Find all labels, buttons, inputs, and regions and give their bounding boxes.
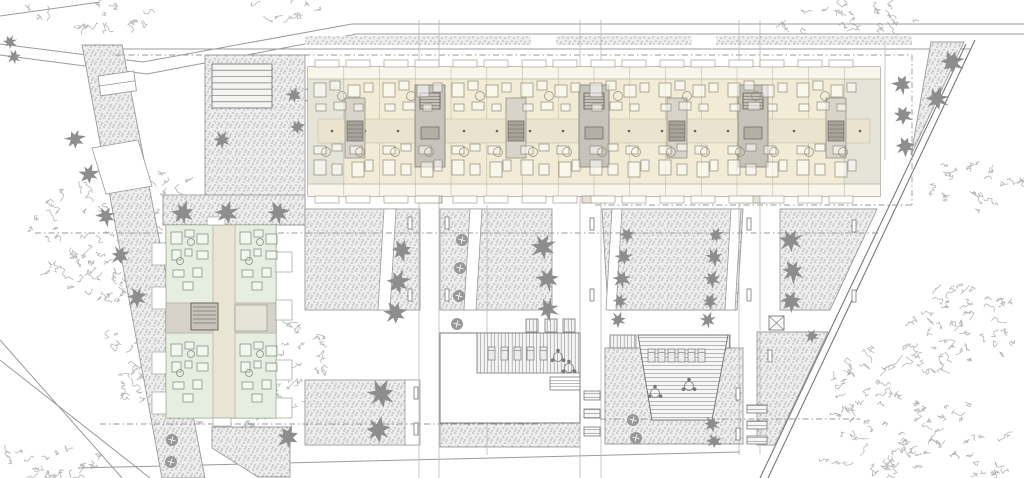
furniture xyxy=(185,249,192,256)
balcony-stub xyxy=(484,60,508,67)
balcony-stub xyxy=(591,60,615,67)
pool-terrace-west xyxy=(440,333,580,423)
balcony-stub xyxy=(829,60,853,67)
furniture xyxy=(728,146,740,154)
balcony-stub xyxy=(798,60,822,67)
balcony-stub xyxy=(760,196,784,203)
furniture xyxy=(314,83,326,97)
balcony-stub xyxy=(453,60,477,67)
balcony-stub xyxy=(829,196,853,203)
furniture xyxy=(383,146,395,154)
sun-lounger xyxy=(668,349,675,362)
outdoor-steps xyxy=(584,391,600,400)
furniture xyxy=(354,104,363,111)
balcony-stub xyxy=(553,60,577,67)
column-dot xyxy=(727,130,730,133)
furniture xyxy=(779,160,787,171)
column-dot xyxy=(859,130,862,133)
furniture xyxy=(242,270,253,277)
furniture xyxy=(590,146,602,154)
bench-marker xyxy=(736,428,740,440)
bench-marker xyxy=(747,218,751,230)
balcony-stub xyxy=(453,196,477,203)
furniture xyxy=(254,249,261,256)
sun-lounger xyxy=(501,347,508,360)
furniture xyxy=(197,234,208,244)
sun-lounger xyxy=(678,349,685,362)
furniture xyxy=(697,162,709,177)
furniture xyxy=(241,250,250,260)
furniture xyxy=(434,160,442,171)
balcony-stub xyxy=(622,60,646,67)
balcony-stub xyxy=(622,196,646,203)
furniture xyxy=(699,104,708,111)
furniture xyxy=(401,144,411,151)
furniture xyxy=(452,83,464,97)
furniture xyxy=(470,164,480,175)
furniture xyxy=(314,160,326,175)
furniture xyxy=(815,164,825,175)
furniture xyxy=(314,146,326,154)
furniture xyxy=(559,162,571,177)
furniture xyxy=(185,361,192,368)
pergola xyxy=(610,335,636,348)
north-apartment-building xyxy=(308,60,880,203)
furniture xyxy=(608,164,618,175)
furniture xyxy=(815,144,825,151)
furniture xyxy=(521,146,533,154)
furniture xyxy=(677,164,687,175)
furniture xyxy=(262,380,271,389)
furniture xyxy=(486,85,498,97)
furniture xyxy=(470,144,480,151)
column-dot xyxy=(793,130,796,133)
furniture xyxy=(539,164,549,175)
furniture xyxy=(383,160,395,175)
balcony-stub xyxy=(384,60,408,67)
bench-marker xyxy=(768,350,772,362)
core-wing xyxy=(235,305,267,331)
outdoor-steps xyxy=(747,405,767,413)
furniture xyxy=(364,83,373,92)
furniture xyxy=(746,164,756,175)
furniture xyxy=(606,81,616,90)
furniture xyxy=(561,104,570,111)
outdoor-steps xyxy=(584,427,600,436)
furniture xyxy=(334,102,346,110)
furniture xyxy=(241,362,250,372)
balcony-stub xyxy=(415,196,439,203)
entry-stub xyxy=(213,418,231,426)
bench-marker xyxy=(736,388,740,400)
balcony-stub xyxy=(152,287,166,309)
furniture xyxy=(197,346,208,356)
furniture xyxy=(837,104,846,111)
pool-south-strip xyxy=(440,423,580,447)
furniture xyxy=(240,344,251,356)
balcony-stub xyxy=(729,60,753,67)
furniture xyxy=(254,342,263,349)
furniture xyxy=(728,83,740,97)
bench-marker xyxy=(747,289,751,301)
furniture xyxy=(452,146,464,154)
furniture xyxy=(254,361,261,368)
balcony-stub xyxy=(415,60,439,67)
furniture xyxy=(503,160,511,171)
balcony-stub xyxy=(315,196,339,203)
furniture xyxy=(797,160,809,175)
bench-marker xyxy=(852,290,856,302)
balcony-stub xyxy=(384,196,408,203)
bench-marker xyxy=(408,217,412,229)
furniture xyxy=(659,83,671,97)
furniture xyxy=(608,144,618,151)
bench-marker xyxy=(445,289,449,301)
balcony-stub xyxy=(660,60,684,67)
furniture xyxy=(242,382,253,389)
furniture xyxy=(744,81,754,90)
balcony-stub xyxy=(152,352,166,374)
furniture xyxy=(433,83,442,92)
furniture xyxy=(183,394,193,402)
sun-lounger xyxy=(658,349,665,362)
furniture xyxy=(266,234,277,244)
furniture xyxy=(423,104,432,111)
balcony-stub xyxy=(346,196,370,203)
furniture xyxy=(521,160,533,175)
sidewalk-band xyxy=(716,36,912,45)
furniture xyxy=(172,362,181,372)
balcony-stub xyxy=(484,196,508,203)
column-dot xyxy=(562,130,565,133)
furniture xyxy=(403,102,415,110)
column-dot xyxy=(397,130,400,133)
balcony-stub xyxy=(691,60,715,67)
sidewalk-band xyxy=(305,36,531,45)
balcony-stub xyxy=(152,392,166,414)
column-dot xyxy=(331,130,334,133)
furniture xyxy=(197,363,208,371)
bench-marker xyxy=(408,289,412,301)
balcony-stub xyxy=(522,196,546,203)
furniture xyxy=(399,81,409,90)
bench-marker xyxy=(590,218,594,230)
furniture xyxy=(197,251,208,259)
swimming-pool xyxy=(638,335,728,420)
balcony-stub xyxy=(591,196,615,203)
column-dot xyxy=(496,130,499,133)
furniture xyxy=(401,164,411,175)
sun-lounger xyxy=(698,349,705,362)
furniture xyxy=(240,232,251,244)
furniture xyxy=(728,160,740,175)
furniture xyxy=(813,81,823,90)
furniture xyxy=(454,104,464,111)
furniture xyxy=(624,85,636,97)
furniture xyxy=(572,160,580,171)
west-apartment-building xyxy=(152,217,292,426)
sun-lounger xyxy=(648,349,655,362)
bench-marker xyxy=(852,220,856,232)
furniture xyxy=(768,104,777,111)
furniture xyxy=(502,83,511,92)
furniture xyxy=(677,144,687,151)
furniture xyxy=(173,270,184,277)
furniture xyxy=(831,85,843,97)
furniture xyxy=(254,230,263,237)
furniture xyxy=(252,282,262,290)
furniture xyxy=(628,162,640,177)
pergola xyxy=(526,319,538,332)
balcony-stub xyxy=(553,196,577,203)
balcony-stub xyxy=(346,60,370,67)
bench-marker xyxy=(590,289,594,301)
balcony-stub xyxy=(276,398,292,418)
sun-lounger xyxy=(688,349,695,362)
furniture xyxy=(630,104,639,111)
outdoor-steps xyxy=(584,409,600,418)
bench-marker xyxy=(414,423,418,435)
furniture xyxy=(472,102,484,110)
furniture xyxy=(365,160,373,171)
pergola xyxy=(545,319,557,332)
furniture xyxy=(262,268,271,277)
furniture xyxy=(266,346,277,356)
furniture xyxy=(797,146,809,154)
sun-lounger xyxy=(514,347,521,360)
furniture xyxy=(332,164,342,175)
furniture xyxy=(330,81,340,90)
balcony-stub xyxy=(315,60,339,67)
column-dot xyxy=(463,130,466,133)
balcony-stub xyxy=(660,196,684,203)
furniture xyxy=(675,81,685,90)
furniture xyxy=(848,160,856,171)
furniture xyxy=(171,344,182,356)
furniture xyxy=(183,282,193,290)
furniture xyxy=(710,160,718,171)
furniture xyxy=(171,232,182,244)
furniture xyxy=(730,104,740,111)
furniture xyxy=(766,162,778,177)
column-dot xyxy=(628,130,631,133)
furniture xyxy=(348,85,360,97)
furniture xyxy=(173,382,184,389)
bench-marker xyxy=(414,387,418,399)
furniture xyxy=(521,83,533,97)
furniture xyxy=(490,162,502,177)
furniture xyxy=(746,144,756,151)
balcony-stub xyxy=(691,196,715,203)
furniture xyxy=(193,380,202,389)
outdoor-steps xyxy=(747,421,767,429)
furniture xyxy=(640,83,649,92)
furniture xyxy=(679,102,691,110)
furniture xyxy=(641,160,649,171)
furniture xyxy=(452,160,464,175)
furniture xyxy=(316,104,326,111)
furniture xyxy=(537,81,547,90)
sun-lounger xyxy=(488,347,495,360)
column-dot xyxy=(694,130,697,133)
furniture xyxy=(266,363,277,371)
furniture xyxy=(610,102,622,110)
outdoor-steps xyxy=(747,436,767,444)
furniture xyxy=(492,104,501,111)
balcony-stub xyxy=(729,196,753,203)
furniture xyxy=(352,162,364,177)
furniture xyxy=(748,102,760,110)
pool-terrace-east xyxy=(638,335,728,420)
sidewalk-band xyxy=(556,36,692,45)
furniture xyxy=(847,83,856,92)
furniture xyxy=(417,85,429,97)
furniture xyxy=(266,251,277,259)
furniture xyxy=(778,83,787,92)
balcony-stub xyxy=(152,243,166,265)
balcony-stub xyxy=(276,360,292,380)
furniture xyxy=(185,342,194,349)
furniture xyxy=(693,85,705,97)
furniture xyxy=(835,162,847,177)
sun-lounger xyxy=(527,347,534,360)
column-dot xyxy=(661,130,664,133)
furniture xyxy=(421,162,433,177)
furniture xyxy=(797,83,809,97)
furniture xyxy=(659,146,671,154)
furniture xyxy=(555,85,567,97)
pergola xyxy=(563,319,575,332)
furniture xyxy=(571,83,580,92)
furniture xyxy=(172,250,181,260)
furniture xyxy=(799,104,809,111)
balcony-stub xyxy=(798,196,822,203)
furniture xyxy=(709,83,718,92)
furniture xyxy=(592,104,602,111)
furniture xyxy=(252,394,262,402)
balcony-stub xyxy=(276,300,292,320)
sun-lounger xyxy=(540,347,547,360)
balcony-stub xyxy=(522,60,546,67)
column-dot xyxy=(529,130,532,133)
furniture xyxy=(762,85,774,97)
south-panel-center xyxy=(305,380,417,445)
furniture xyxy=(817,102,829,110)
furniture xyxy=(590,160,602,175)
furniture xyxy=(541,102,553,110)
furniture xyxy=(590,83,602,97)
site-plan-page xyxy=(0,0,1024,478)
furniture xyxy=(332,144,342,151)
furniture xyxy=(659,160,671,175)
furniture xyxy=(468,81,478,90)
furniture xyxy=(385,104,395,111)
balcony-stub xyxy=(760,60,784,67)
furniture xyxy=(539,144,549,151)
furniture xyxy=(523,104,533,111)
furniture xyxy=(661,104,671,111)
site-plan-drawing xyxy=(0,0,1024,478)
bench-marker xyxy=(445,217,449,229)
furniture xyxy=(383,83,395,97)
furniture xyxy=(193,268,202,277)
balcony-stub xyxy=(276,252,292,272)
furniture xyxy=(185,230,194,237)
